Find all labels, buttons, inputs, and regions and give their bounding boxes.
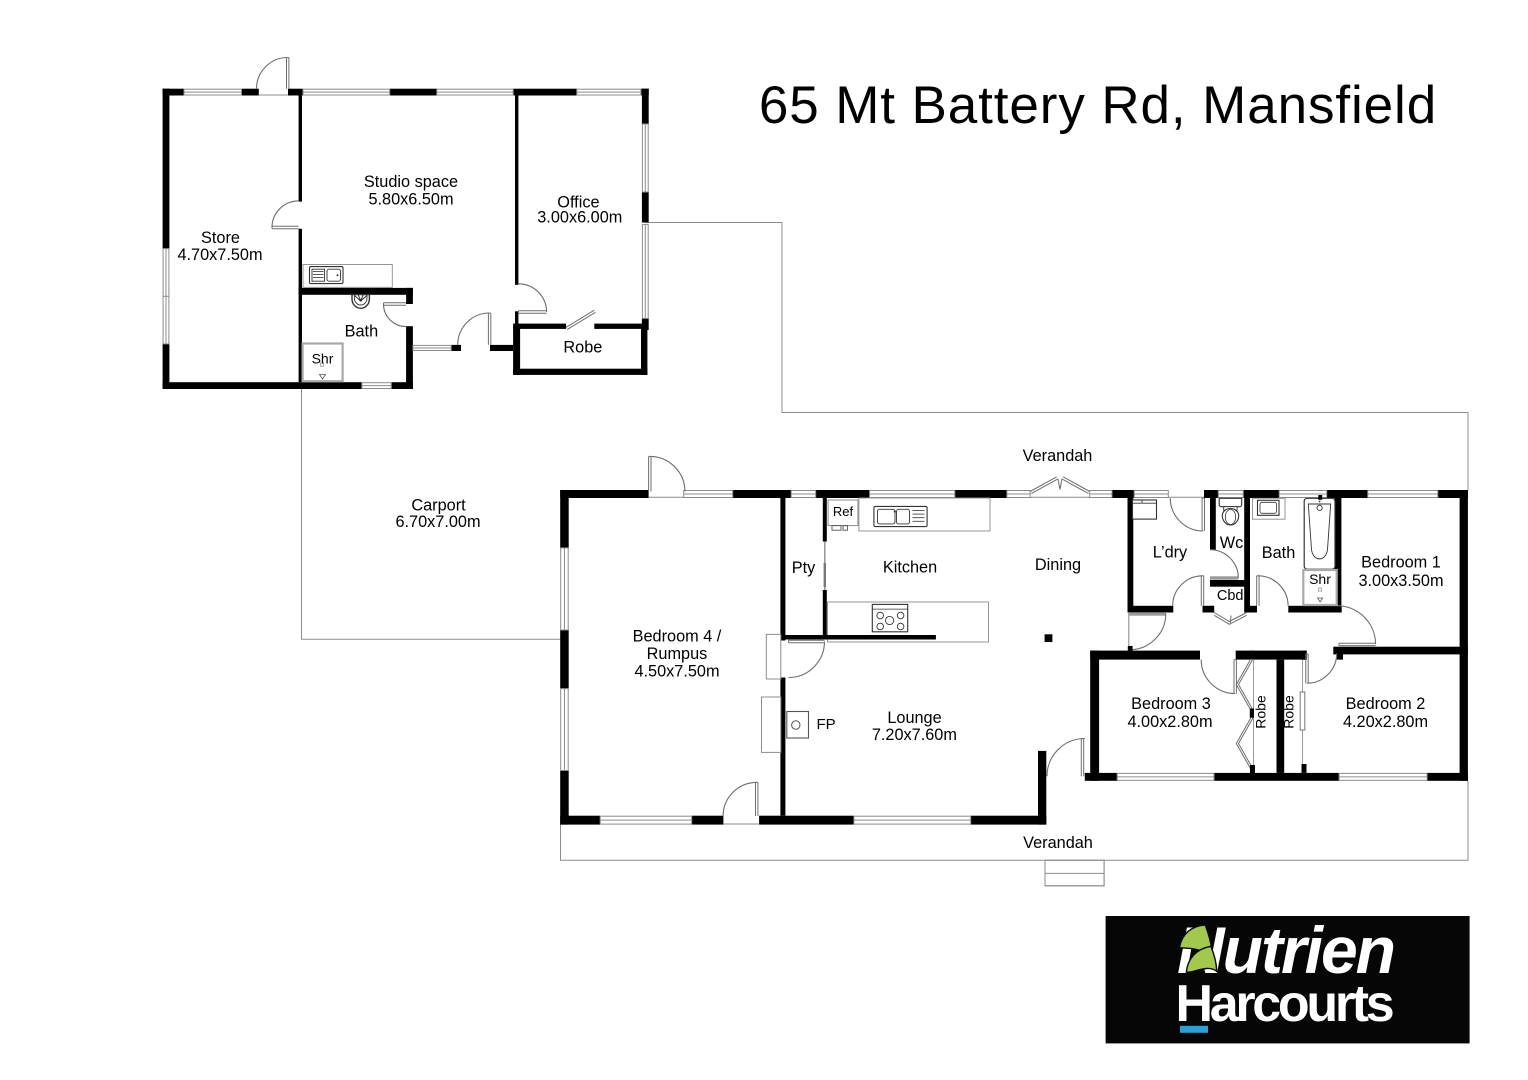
svg-text:Pty: Pty [792,559,816,577]
svg-text:3.00x6.00m: 3.00x6.00m [537,209,622,227]
svg-text:65 Mt Battery Rd, Mansfield: 65 Mt Battery Rd, Mansfield [759,76,1437,135]
svg-text:Bath: Bath [345,323,379,341]
svg-text:Wc: Wc [1220,534,1244,552]
svg-text:Robe: Robe [563,339,602,357]
svg-text:L’dry: L’dry [1153,544,1188,562]
svg-text:Ref: Ref [833,504,854,519]
svg-text:Bedroom 1: Bedroom 1 [1361,553,1441,571]
svg-text:7.20x7.60m: 7.20x7.60m [872,726,957,744]
svg-text:4.20x2.80m: 4.20x2.80m [1343,713,1428,731]
svg-text:Shr: Shr [1309,571,1331,587]
svg-text:Bedroom 2: Bedroom 2 [1346,695,1426,713]
svg-text:Robe: Robe [1253,695,1269,729]
svg-text:4.50x7.50m: 4.50x7.50m [634,663,719,681]
svg-text:Kitchen: Kitchen [883,558,937,576]
svg-text:Dining: Dining [1035,556,1081,574]
svg-text:6.70x7.00m: 6.70x7.00m [395,513,480,531]
svg-text:Verandah: Verandah [1023,447,1093,465]
svg-text:Lounge: Lounge [887,709,941,727]
svg-text:3.00x3.50m: 3.00x3.50m [1358,572,1443,590]
svg-text:Bath: Bath [1262,544,1296,562]
svg-text:Store: Store [201,229,240,247]
svg-text:4.00x2.80m: 4.00x2.80m [1127,713,1212,731]
svg-text:Shr: Shr [312,351,334,367]
svg-text:5.80x6.50m: 5.80x6.50m [368,191,453,209]
svg-text:FP: FP [817,716,836,733]
svg-text:Rumpus: Rumpus [647,645,708,663]
svg-text:Robe: Robe [1281,695,1297,729]
svg-text:Carport: Carport [411,497,466,515]
svg-text:Verandah: Verandah [1023,834,1093,852]
svg-text:Cbd: Cbd [1217,588,1244,604]
svg-text:Studio space: Studio space [364,173,458,191]
svg-text:Harcourts: Harcourts [1176,975,1393,1033]
svg-text:Bedroom 4 /: Bedroom 4 / [633,628,722,646]
svg-text:Bedroom 3: Bedroom 3 [1131,695,1211,713]
svg-text:4.70x7.50m: 4.70x7.50m [177,246,262,264]
